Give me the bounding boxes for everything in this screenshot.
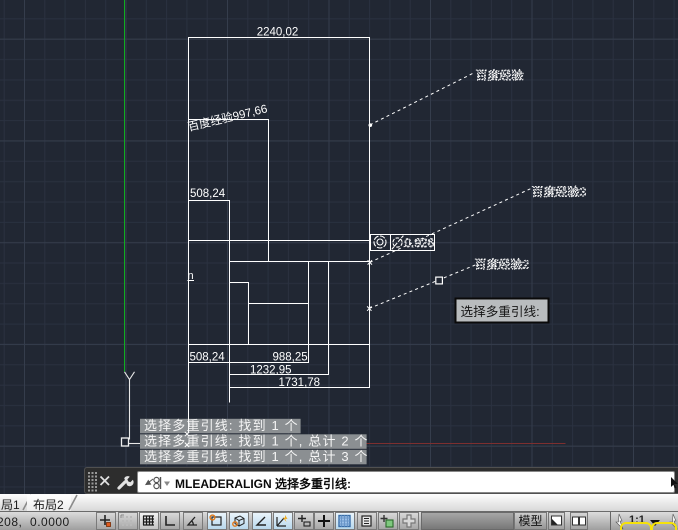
svg-text:508,24: 508,24 [190, 352, 226, 364]
svg-text:百度经验: 百度经验 [475, 68, 523, 83]
svg-text:百度经验2: 百度经验2 [474, 257, 529, 272]
svg-text:选择多重引线: 找到 1 个, 总计 3 个: 选择多重引线: 找到 1 个, 总计 3 个 [144, 449, 369, 464]
svg-text:1232,95: 1232,95 [250, 365, 292, 377]
svg-text:选择多重引线:: 选择多重引线: [461, 304, 540, 319]
svg-text:1731,78: 1731,78 [279, 377, 321, 389]
svg-text:0.926: 0.926 [405, 236, 435, 250]
svg-text:508,24: 508,24 [190, 188, 226, 200]
svg-text:2240,02: 2240,02 [257, 27, 299, 39]
svg-text:百度经验3: 百度经验3 [531, 184, 586, 199]
svg-text:选择多重引线: 找到 1 个, 总计 2 个: 选择多重引线: 找到 1 个, 总计 2 个 [144, 434, 369, 449]
svg-text:选择多重引线: 找到 1 个: 选择多重引线: 找到 1 个 [144, 418, 299, 433]
svg-text:988,25: 988,25 [273, 352, 308, 364]
